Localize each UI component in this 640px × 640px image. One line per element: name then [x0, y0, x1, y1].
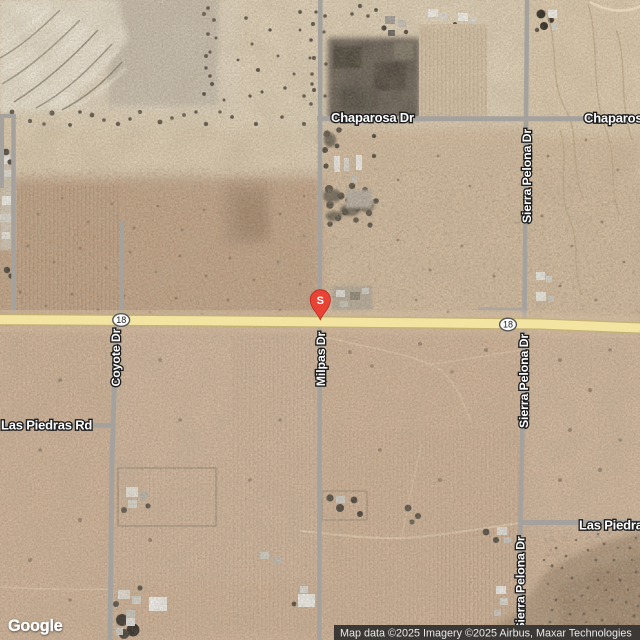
svg-text:Sierra Pelona Dr: Sierra Pelona Dr: [517, 334, 531, 428]
svg-text:18: 18: [503, 320, 513, 330]
svg-text:18: 18: [116, 315, 126, 325]
svg-text:Coyote Dr: Coyote Dr: [109, 328, 123, 386]
svg-text:Las Piedras Rd: Las Piedras Rd: [579, 518, 640, 533]
svg-text:S: S: [317, 295, 324, 307]
svg-text:Milpas Dr: Milpas Dr: [314, 331, 328, 386]
svg-text:Sierra Pelona Dr: Sierra Pelona Dr: [520, 129, 534, 223]
svg-text:Map data ©2025 Imagery ©2025 A: Map data ©2025 Imagery ©2025 Airbus, Max…: [340, 627, 632, 639]
svg-text:Las Piedras Rd: Las Piedras Rd: [1, 418, 92, 433]
svg-text:Chaparosa Dr: Chaparosa Dr: [331, 110, 414, 125]
svg-text:Chaparosa Dr: Chaparosa Dr: [584, 111, 640, 126]
svg-text:Google: Google: [8, 617, 63, 635]
svg-text:Sierra Pelona Dr: Sierra Pelona Dr: [514, 536, 528, 630]
